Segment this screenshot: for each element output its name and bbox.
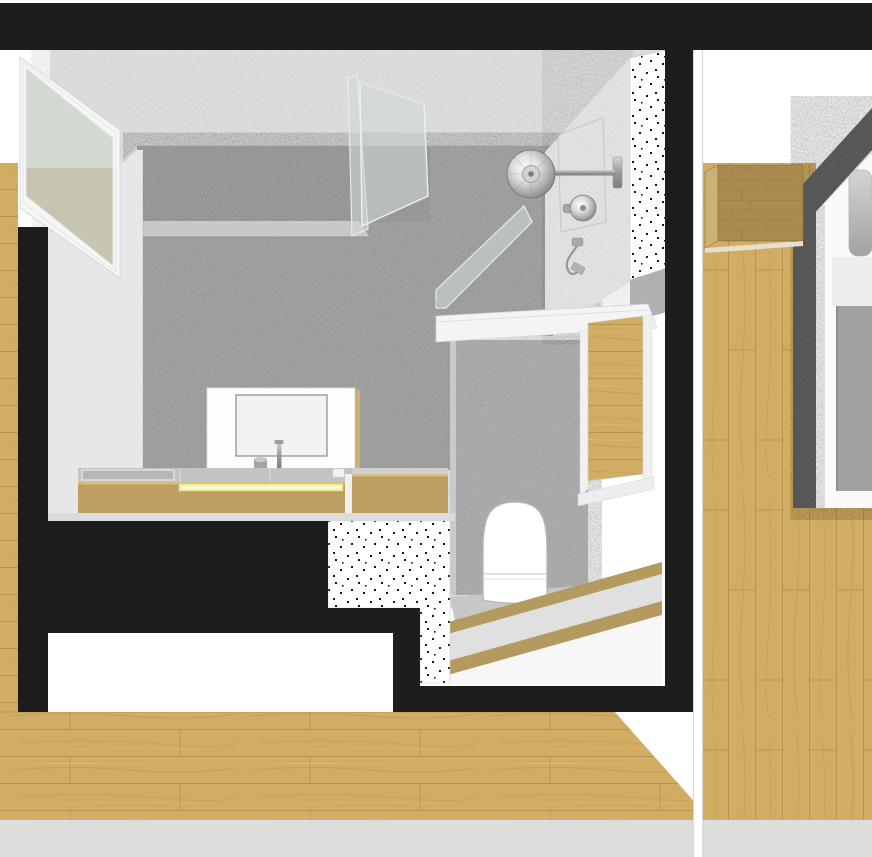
bedroom <box>703 108 872 820</box>
counter-under-strip <box>48 513 455 522</box>
basin-faucet <box>277 441 282 470</box>
counter-bevel-right <box>352 474 448 477</box>
cut-right-strip <box>665 50 693 690</box>
door-jamb-right <box>643 314 652 483</box>
bed-sheet-band <box>832 257 872 306</box>
room-divider-strip <box>693 50 703 857</box>
thermostat-center <box>580 205 586 211</box>
white-plinth-band <box>48 633 393 712</box>
counter-front-left <box>78 482 177 515</box>
wall-hung-toilet <box>483 502 547 603</box>
left-parquet-strip <box>0 163 18 712</box>
counter-tray <box>82 470 174 480</box>
cut-vanity-base <box>48 521 328 633</box>
counter-front-gap <box>345 474 352 514</box>
shower-head-center <box>528 171 534 177</box>
architectural-render-stage <box>0 0 872 857</box>
cut-top-band <box>0 3 872 50</box>
toilet-wall-corner-highlight <box>450 340 456 595</box>
mirror-panel-side <box>355 390 360 470</box>
tumbler-cup-rim <box>254 458 267 463</box>
cut-left-strip <box>18 227 48 712</box>
parquet-floor <box>0 712 693 820</box>
led-light-core <box>181 486 341 489</box>
cabinet-side <box>705 165 718 248</box>
door-jamb-left <box>580 329 588 496</box>
doorway-floor-view <box>588 316 643 481</box>
hand-shower-bracket <box>572 238 583 246</box>
basin-faucet-spout <box>275 440 284 444</box>
mosaic-dotted-strip <box>630 50 667 280</box>
cut-step-2 <box>393 633 420 690</box>
cut-bottom-band <box>393 686 693 712</box>
shower-arm <box>553 170 615 176</box>
gray-blanket <box>836 306 872 491</box>
bedroom-floor-right <box>816 508 872 820</box>
wall-ledge <box>137 221 370 237</box>
bed-side-white-strip <box>816 160 823 508</box>
counter-front-right <box>352 474 448 513</box>
blanket-edge <box>836 306 838 491</box>
bathroom-cutaway-render <box>0 0 872 857</box>
bottom-base-strip <box>0 820 872 857</box>
cut-step-1 <box>328 608 420 633</box>
counter-soap-dish <box>333 469 344 477</box>
wall-cabinet <box>705 165 803 253</box>
mattress-edge <box>823 205 825 508</box>
cabinet-face <box>718 165 803 241</box>
divider-strip <box>693 50 703 857</box>
bed <box>823 153 872 508</box>
pillow <box>849 170 872 256</box>
